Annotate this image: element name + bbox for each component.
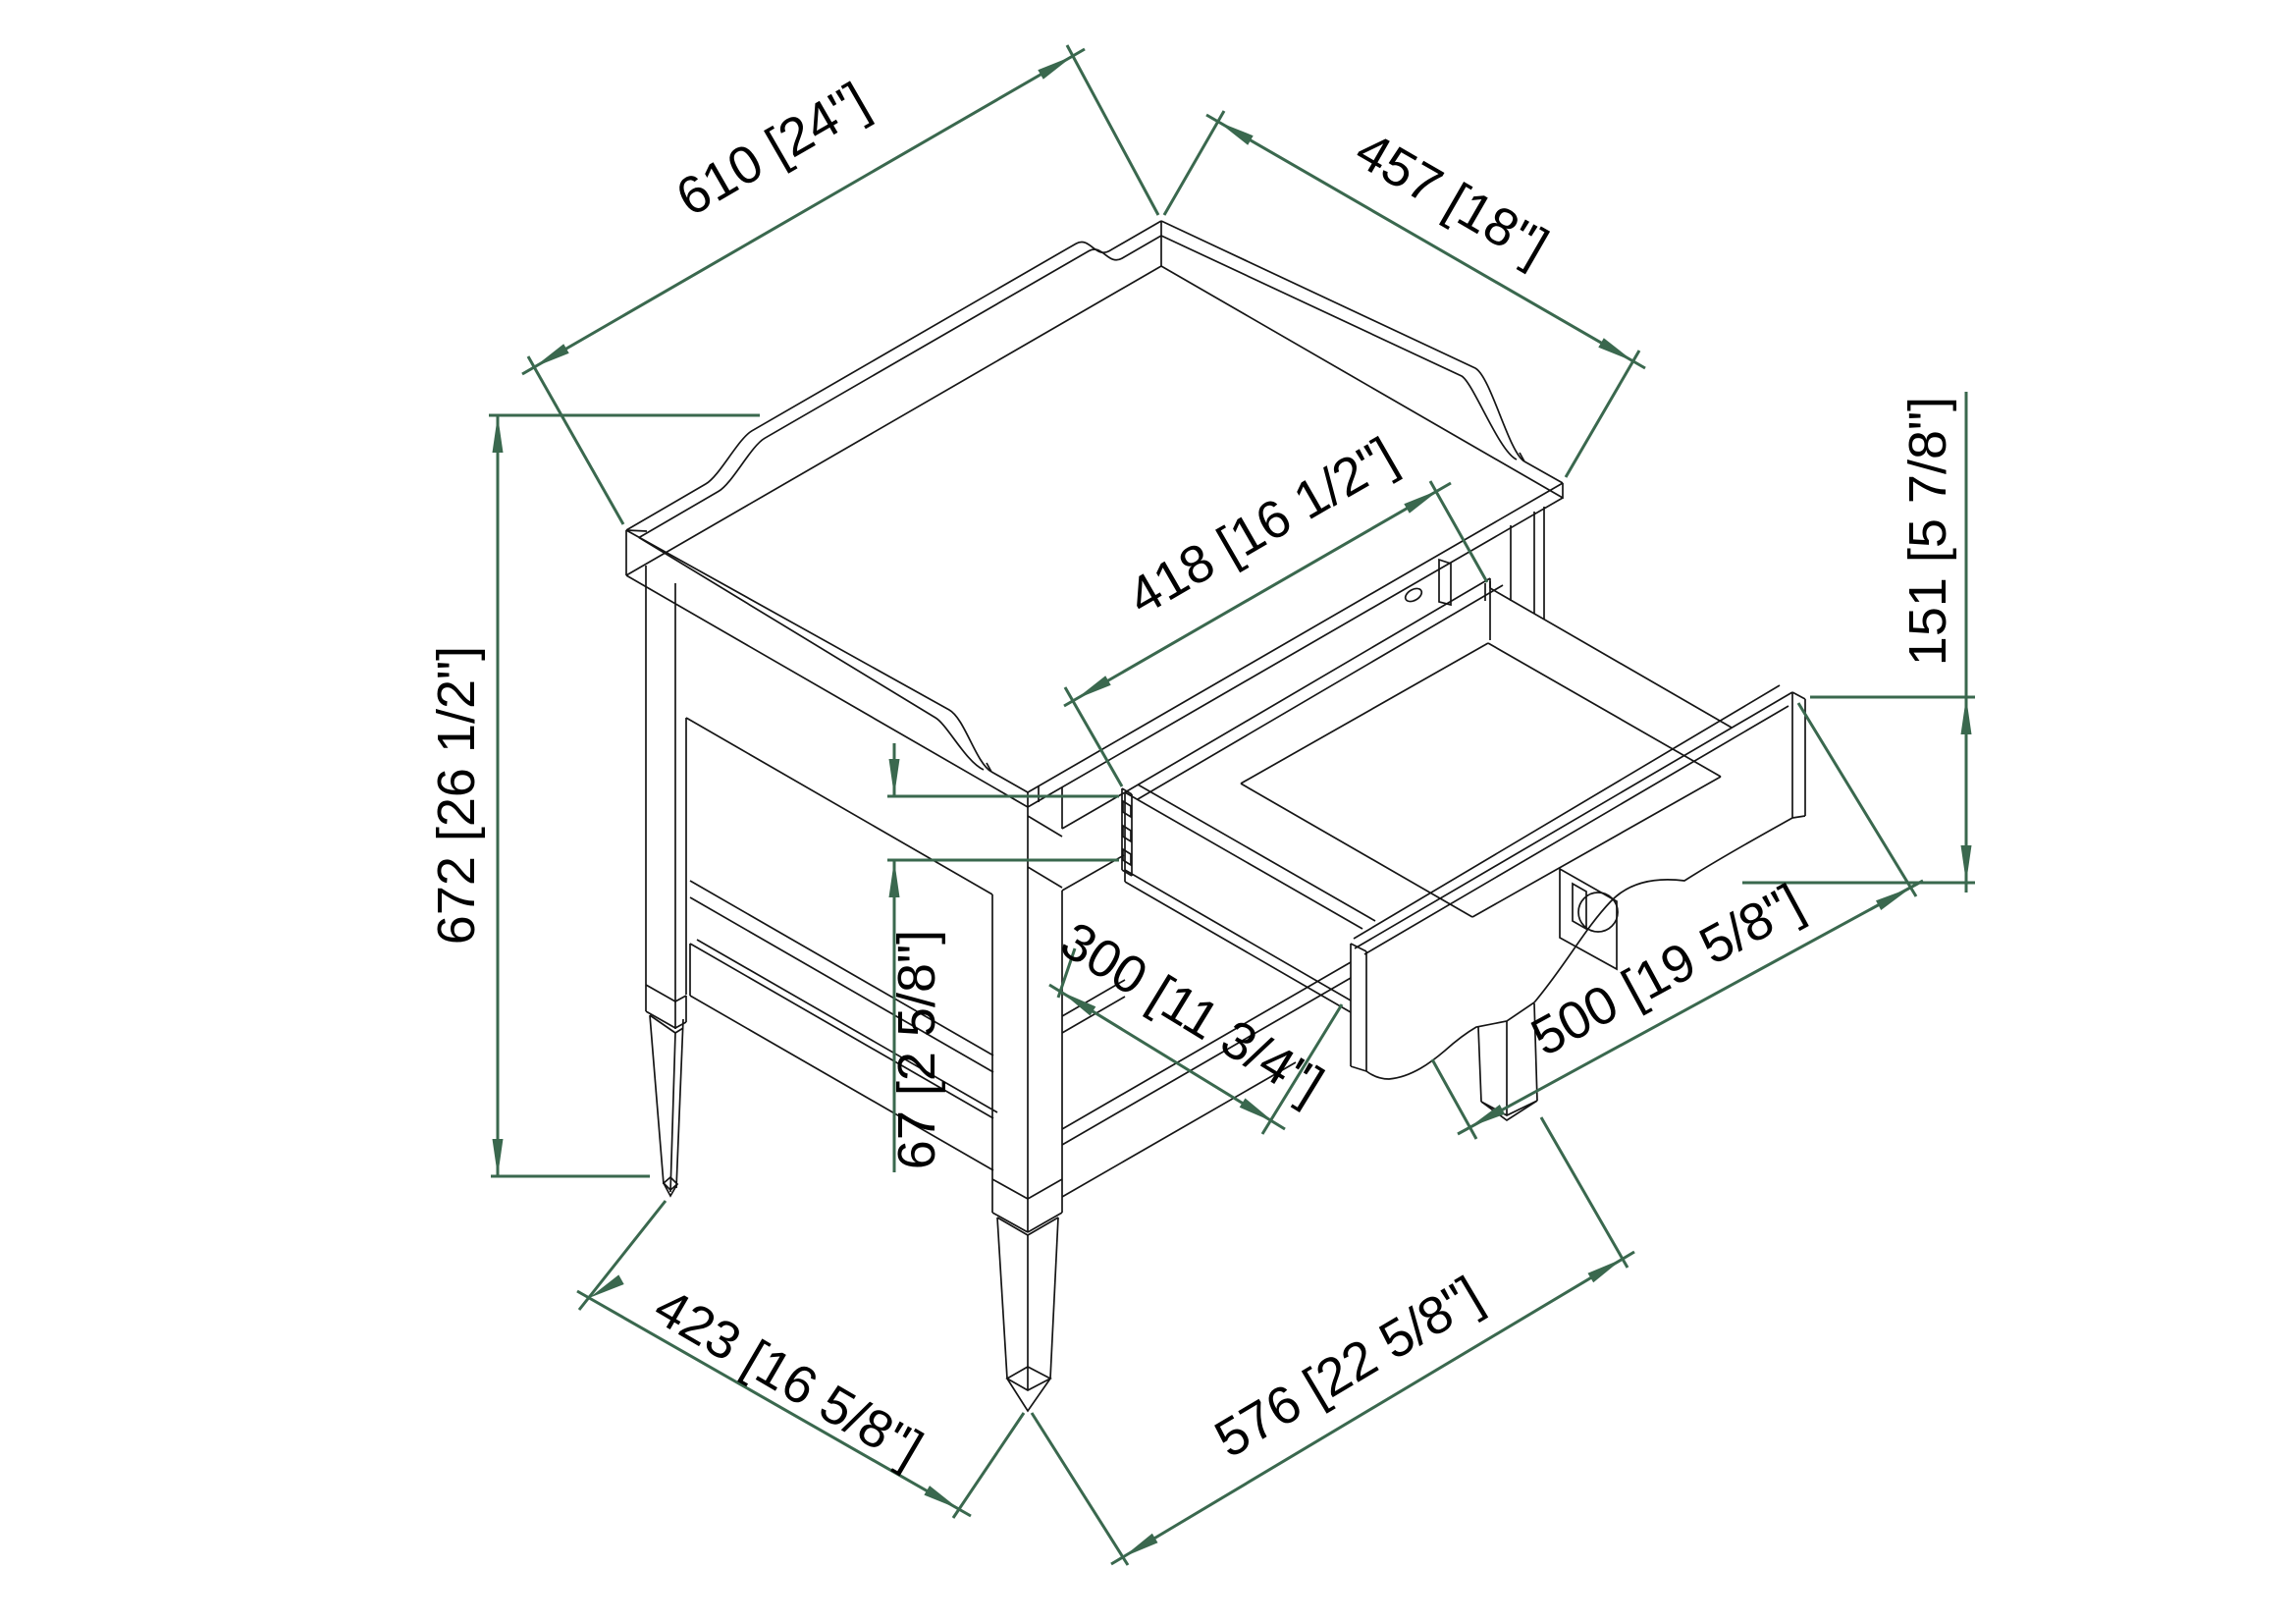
svg-text:151 [5 7/8"]: 151 [5 7/8"]	[1898, 397, 1957, 666]
svg-text:67 [2 5/8"]: 67 [2 5/8"]	[887, 930, 946, 1169]
svg-text:672 [26 1/2"]: 672 [26 1/2"]	[427, 646, 486, 945]
